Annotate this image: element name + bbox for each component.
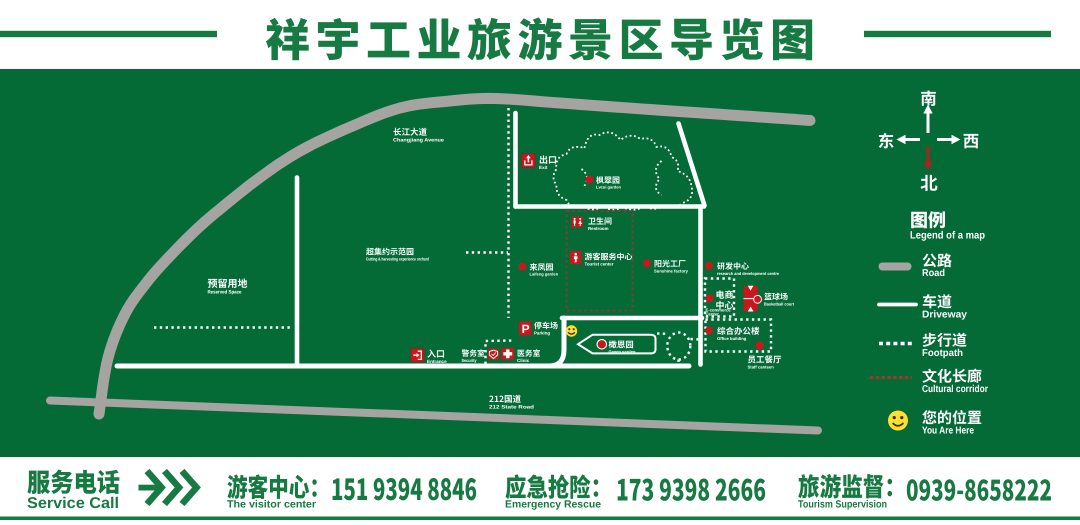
svg-text:Cultural corridor: Cultural corridor xyxy=(922,384,988,395)
svg-text:Office building: Office building xyxy=(717,336,747,341)
svg-text:Legend of a map: Legend of a map xyxy=(910,230,985,242)
svg-text:Reserved Space: Reserved Space xyxy=(208,290,242,296)
svg-text:Lvcui garden: Lvcui garden xyxy=(596,185,621,190)
svg-text:Ganen garden: Ganen garden xyxy=(609,349,636,354)
svg-text:Laifeng garden: Laifeng garden xyxy=(530,272,559,277)
svg-text:You Are Here: You Are Here xyxy=(922,426,974,437)
svg-text:Road: Road xyxy=(922,268,945,279)
svg-text:Emergency Rescue: Emergency Rescue xyxy=(505,499,601,511)
svg-text:Footpath: Footpath xyxy=(922,348,963,359)
svg-text:Exit: Exit xyxy=(539,165,548,170)
svg-text:Basketball court: Basketball court xyxy=(764,301,795,306)
svg-text:Driveway: Driveway xyxy=(922,310,967,321)
svg-text:Restroom: Restroom xyxy=(588,226,609,231)
svg-text:212 State Road: 212 State Road xyxy=(489,405,534,411)
svg-text:Security: Security xyxy=(462,358,477,363)
svg-text:Sunshine factory: Sunshine factory xyxy=(654,268,689,273)
svg-text:Clinic: Clinic xyxy=(517,358,530,363)
svg-text:Service Call: Service Call xyxy=(27,495,119,512)
svg-text:Parking: Parking xyxy=(534,331,550,336)
svg-text:Tourism Supervision: Tourism Supervision xyxy=(798,499,887,511)
svg-text:research and development centr: research and development centre xyxy=(717,271,780,276)
svg-text:Staff canteen: Staff canteen xyxy=(748,364,775,369)
svg-text:Center: Center xyxy=(706,312,720,317)
svg-text:Cutting & harvesting experienc: Cutting & harvesting experience orchard xyxy=(366,256,429,261)
svg-text:Changjiang Avenue: Changjiang Avenue xyxy=(393,138,444,144)
svg-text:P: P xyxy=(522,322,530,336)
svg-text:Tourist center: Tourist center xyxy=(585,262,614,267)
svg-text:Entrance: Entrance xyxy=(427,359,447,364)
svg-text:The visitor center: The visitor center xyxy=(227,499,316,511)
